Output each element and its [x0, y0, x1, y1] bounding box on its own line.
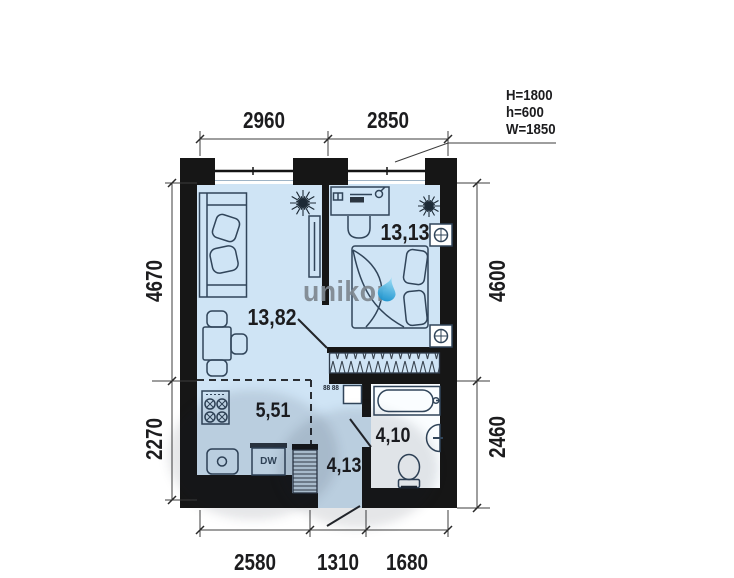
room-label-kitchen: 5,51	[231, 399, 316, 423]
dim-left-upper: 4670	[142, 232, 166, 330]
tv-unit	[309, 216, 320, 277]
bathtub	[374, 387, 440, 416]
dim-top-living: 2960	[215, 108, 313, 132]
room-label-hall: 4,13	[302, 454, 387, 478]
entrance-door-swing	[327, 506, 360, 526]
desk	[331, 187, 389, 215]
dishwasher-label: DW	[252, 456, 285, 467]
room-label-bath: 4,10	[351, 424, 436, 448]
stove	[202, 391, 229, 424]
sofa	[200, 193, 247, 297]
window-living-room	[215, 167, 293, 181]
dim-right-upper: 4600	[485, 232, 509, 330]
window-spec-sill: h=600	[506, 104, 556, 121]
window-spec-width: W=1850	[506, 121, 556, 138]
window-spec: H=1800 h=600 W=1850	[506, 87, 556, 138]
window-spec-height: H=1800	[506, 87, 556, 104]
plant-bedroom-icon	[418, 195, 440, 217]
dim-right-lower: 2460	[485, 388, 509, 486]
dim-left-lower: 2270	[142, 390, 166, 488]
room-label-living: 13,82	[230, 304, 315, 331]
dim-top-bedroom: 2850	[339, 108, 437, 132]
dim-bottom-bath: 1680	[358, 550, 456, 574]
washer-label: 88 88	[319, 385, 342, 392]
vent-box-lower	[430, 325, 452, 347]
window-bedroom	[348, 167, 425, 181]
room-label-bedroom: 13,13	[363, 219, 448, 246]
kitchen-sink	[207, 449, 238, 474]
watermark: unikor	[303, 276, 387, 309]
toilet	[399, 455, 420, 488]
plant-living-icon	[290, 190, 316, 216]
washing-machine	[344, 386, 362, 404]
watermark-part1: unik	[303, 276, 360, 308]
watermark-part2: o	[360, 276, 377, 308]
floor-plan: 2960 2850 4670 2270 4600 2460 2580 1310 …	[0, 0, 734, 578]
built-in-wardrobe	[330, 353, 440, 373]
